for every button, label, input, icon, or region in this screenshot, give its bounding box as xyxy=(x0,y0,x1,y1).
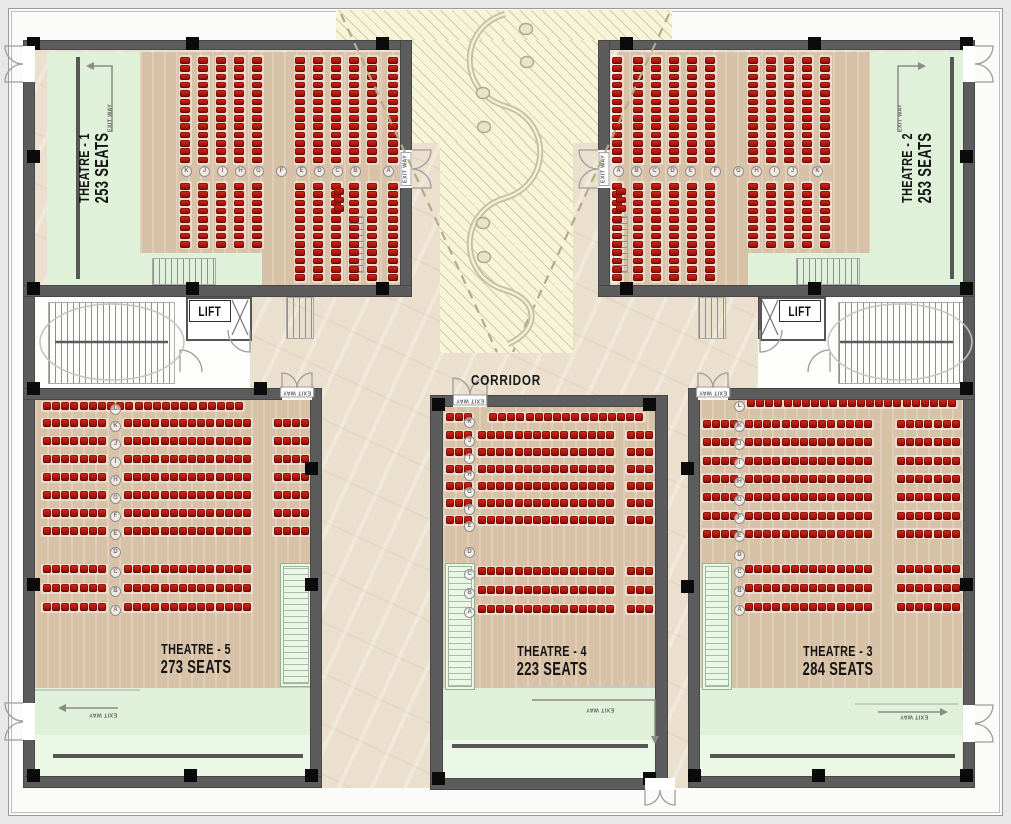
seat xyxy=(633,216,643,223)
seat xyxy=(669,140,679,147)
seat xyxy=(144,402,152,410)
seat xyxy=(388,82,398,89)
seat xyxy=(802,216,812,223)
seat xyxy=(179,455,187,463)
theatre-4-row-letter: F xyxy=(464,504,475,515)
seat xyxy=(802,140,812,147)
seat xyxy=(313,274,323,281)
seat xyxy=(208,402,216,410)
theatre-5-label: THEATRE - 5 273 SEATS xyxy=(161,641,232,677)
seat xyxy=(820,148,830,155)
seat xyxy=(802,90,812,97)
seat xyxy=(763,512,771,520)
seat xyxy=(766,90,776,97)
seat xyxy=(943,512,951,520)
seat xyxy=(524,605,532,613)
theatre-2-seat-count: 253 SEATS xyxy=(916,133,935,204)
seat xyxy=(216,565,224,573)
theatre-2-row-letter: D xyxy=(667,166,678,177)
seat xyxy=(599,413,607,421)
seat xyxy=(906,512,914,520)
theatre-5-row-letter: H xyxy=(110,475,121,486)
seat xyxy=(837,457,845,465)
seat xyxy=(295,200,305,207)
seat xyxy=(915,438,923,446)
seat xyxy=(180,241,190,248)
seat xyxy=(349,266,359,273)
seat xyxy=(446,516,454,524)
seat xyxy=(687,65,697,72)
door-leaf xyxy=(5,64,23,82)
seat xyxy=(367,274,377,281)
seat xyxy=(313,74,323,81)
seat xyxy=(791,475,799,483)
seat xyxy=(61,491,69,499)
seat xyxy=(283,437,291,445)
seat xyxy=(588,516,596,524)
seat xyxy=(180,65,190,72)
seat xyxy=(524,567,532,575)
seat xyxy=(349,274,359,281)
seat xyxy=(754,475,762,483)
seat xyxy=(943,493,951,501)
column xyxy=(305,769,318,782)
seat xyxy=(943,603,951,611)
seat xyxy=(669,90,679,97)
seat xyxy=(252,107,262,114)
seat xyxy=(295,132,305,139)
seat xyxy=(295,233,305,240)
seat xyxy=(579,567,587,575)
seat xyxy=(170,509,178,517)
seat xyxy=(61,419,69,427)
seat xyxy=(651,249,661,256)
seat xyxy=(588,482,596,490)
theatre-1-row-letter: C xyxy=(332,166,343,177)
seat xyxy=(142,491,150,499)
seat xyxy=(180,208,190,215)
seat xyxy=(636,605,644,613)
seat xyxy=(800,584,808,592)
seat xyxy=(52,509,60,517)
seat xyxy=(827,438,835,446)
seat xyxy=(551,567,559,575)
seat xyxy=(906,584,914,592)
seat xyxy=(705,200,715,207)
seat xyxy=(669,82,679,89)
theatre-1-row-letter: K xyxy=(181,166,192,177)
seat xyxy=(791,493,799,501)
seat xyxy=(198,140,208,147)
seat xyxy=(216,225,226,232)
column xyxy=(186,37,199,50)
seat xyxy=(705,90,715,97)
seat xyxy=(703,420,711,428)
seat xyxy=(43,437,51,445)
seat xyxy=(784,225,794,232)
seat xyxy=(687,216,697,223)
seat xyxy=(560,431,568,439)
stairwell-right xyxy=(838,302,965,384)
seat xyxy=(651,123,661,130)
seat xyxy=(349,225,359,232)
seat xyxy=(334,205,344,212)
seat xyxy=(809,603,817,611)
seat xyxy=(766,65,776,72)
seat xyxy=(606,586,614,594)
theatre-1-row-letter: D xyxy=(314,166,325,177)
seat xyxy=(712,512,720,520)
seat xyxy=(197,565,205,573)
seat xyxy=(930,399,938,407)
seat xyxy=(784,399,792,407)
theatre-2-screen xyxy=(950,57,954,279)
seat xyxy=(754,565,762,573)
seat xyxy=(855,530,863,538)
seat xyxy=(216,82,226,89)
theatre-2-row-letter: F xyxy=(710,166,721,177)
seat xyxy=(252,208,262,215)
seat xyxy=(313,233,323,240)
seat xyxy=(612,65,622,72)
seat xyxy=(349,258,359,265)
seat xyxy=(748,148,758,155)
seat xyxy=(748,115,758,122)
seat xyxy=(225,419,233,427)
seat xyxy=(784,233,794,240)
seat xyxy=(349,74,359,81)
seat xyxy=(367,74,377,81)
seat xyxy=(446,448,454,456)
seat xyxy=(943,530,951,538)
seat xyxy=(784,140,794,147)
seat xyxy=(61,455,69,463)
seat xyxy=(924,493,932,501)
seat xyxy=(570,567,578,575)
seat xyxy=(579,482,587,490)
seat xyxy=(839,399,847,407)
seat xyxy=(633,74,643,81)
seat xyxy=(597,465,605,473)
seat xyxy=(766,233,776,240)
seat xyxy=(748,99,758,106)
seat xyxy=(179,491,187,499)
seat xyxy=(705,183,715,190)
seat xyxy=(766,107,776,114)
seat xyxy=(142,603,150,611)
seat xyxy=(748,57,758,64)
seat xyxy=(745,565,753,573)
seat xyxy=(388,225,398,232)
seat xyxy=(915,530,923,538)
seat xyxy=(952,565,960,573)
seat xyxy=(216,157,226,164)
seat xyxy=(705,249,715,256)
seat xyxy=(651,183,661,190)
seat xyxy=(633,115,643,122)
seat xyxy=(515,567,523,575)
seat xyxy=(161,527,169,535)
seat xyxy=(551,448,559,456)
seat xyxy=(61,603,69,611)
theatre-3-screen xyxy=(710,754,955,758)
seat xyxy=(705,65,715,72)
seat xyxy=(897,475,905,483)
door-leaf xyxy=(645,790,660,805)
seat xyxy=(533,465,541,473)
theatre-5-row-letter: J xyxy=(110,439,121,450)
seat xyxy=(745,530,753,538)
seat xyxy=(772,584,780,592)
seat xyxy=(562,413,570,421)
seat xyxy=(98,473,106,481)
seat xyxy=(180,216,190,223)
seat xyxy=(721,438,729,446)
seat xyxy=(633,107,643,114)
seat xyxy=(612,123,622,130)
theatre-4-row-letter: H xyxy=(464,470,475,481)
seat xyxy=(636,516,644,524)
seat xyxy=(827,457,835,465)
seat xyxy=(153,402,161,410)
seat xyxy=(579,586,587,594)
seat xyxy=(745,457,753,465)
seat xyxy=(703,438,711,446)
seat xyxy=(234,57,244,64)
seat xyxy=(124,455,132,463)
seat xyxy=(791,584,799,592)
seat xyxy=(766,208,776,215)
seat xyxy=(705,99,715,106)
seat xyxy=(313,82,323,89)
seat xyxy=(703,493,711,501)
seat xyxy=(505,465,513,473)
seat xyxy=(766,140,776,147)
seat xyxy=(687,208,697,215)
theatre-3-seat-count: 284 SEATS xyxy=(803,660,874,679)
seat xyxy=(198,107,208,114)
seat xyxy=(952,603,960,611)
seat xyxy=(235,402,243,410)
theatre-1-row-letter: J xyxy=(199,166,210,177)
seat xyxy=(705,74,715,81)
seat xyxy=(349,148,359,155)
seat xyxy=(782,530,790,538)
floor-plan: THEATRE - 1 253 SEATS THEATRE - 2 253 SE… xyxy=(0,0,1011,824)
seat xyxy=(687,74,697,81)
theatre-1-label: THEATRE - 1 253 SEATS xyxy=(76,133,112,204)
corridor-label: CORRIDOR xyxy=(471,373,541,389)
seat xyxy=(161,419,169,427)
seat xyxy=(606,567,614,575)
seat xyxy=(645,605,653,613)
seat xyxy=(703,475,711,483)
seat xyxy=(367,140,377,147)
column xyxy=(186,282,199,295)
exit-way-label-t1: EXIT WAY xyxy=(108,104,115,132)
seat xyxy=(721,475,729,483)
seat xyxy=(295,216,305,223)
seat xyxy=(588,431,596,439)
seat xyxy=(234,123,244,130)
seat xyxy=(171,402,179,410)
seat xyxy=(809,475,817,483)
seat xyxy=(766,216,776,223)
seat xyxy=(70,419,78,427)
seat xyxy=(703,530,711,538)
seat xyxy=(446,431,454,439)
seat xyxy=(349,157,359,164)
column xyxy=(376,282,389,295)
seat xyxy=(651,241,661,248)
seat xyxy=(197,603,205,611)
seat xyxy=(612,82,622,89)
seat xyxy=(80,473,88,481)
seat xyxy=(915,584,923,592)
seat xyxy=(687,123,697,130)
seat xyxy=(864,584,872,592)
seat xyxy=(367,99,377,106)
seat xyxy=(952,420,960,428)
seat xyxy=(784,216,794,223)
seat xyxy=(301,509,309,517)
seat xyxy=(818,457,826,465)
seat xyxy=(388,241,398,248)
seat xyxy=(705,233,715,240)
seat xyxy=(651,99,661,106)
seat xyxy=(216,132,226,139)
seat xyxy=(542,516,550,524)
seat xyxy=(524,586,532,594)
seat xyxy=(924,565,932,573)
seat xyxy=(313,266,323,273)
seat xyxy=(837,438,845,446)
column xyxy=(808,37,821,50)
theatre-5-row-letter: G xyxy=(110,493,121,504)
exit-way-label-t2: EXIT WAY xyxy=(898,104,905,132)
seat xyxy=(784,90,794,97)
seat xyxy=(216,509,224,517)
seat xyxy=(651,57,661,64)
seat xyxy=(189,402,197,410)
seat xyxy=(952,584,960,592)
theatre-3-row-letter: F xyxy=(734,513,745,524)
seat xyxy=(367,123,377,130)
seat xyxy=(234,191,244,198)
seat xyxy=(802,123,812,130)
seat xyxy=(274,455,282,463)
seat xyxy=(747,399,755,407)
seat xyxy=(612,140,622,147)
seat xyxy=(180,148,190,155)
seat xyxy=(216,57,226,64)
theatre-4-row-letter: D xyxy=(464,547,475,558)
seat xyxy=(206,565,214,573)
seat xyxy=(820,140,830,147)
seat xyxy=(142,527,150,535)
seat xyxy=(818,475,826,483)
seat xyxy=(687,266,697,273)
seat xyxy=(651,115,661,122)
seat xyxy=(703,512,711,520)
seat xyxy=(216,241,226,248)
seat xyxy=(133,584,141,592)
seat xyxy=(612,258,622,265)
seat xyxy=(243,473,251,481)
seat xyxy=(161,455,169,463)
seat xyxy=(934,438,942,446)
seat xyxy=(570,482,578,490)
seat xyxy=(43,402,51,410)
seat xyxy=(800,512,808,520)
seat xyxy=(292,491,300,499)
seat xyxy=(763,475,771,483)
seat xyxy=(234,527,242,535)
seat xyxy=(216,65,226,72)
seat xyxy=(818,530,826,538)
theatre-2-row-letter: K xyxy=(812,166,823,177)
seat xyxy=(216,107,226,114)
seat xyxy=(837,603,845,611)
seat xyxy=(367,107,377,114)
seat xyxy=(161,491,169,499)
seat xyxy=(866,399,874,407)
seat xyxy=(388,90,398,97)
seat xyxy=(234,509,242,517)
seat xyxy=(234,132,244,139)
seat xyxy=(669,233,679,240)
seat xyxy=(924,420,932,428)
seat xyxy=(687,200,697,207)
seat xyxy=(524,482,532,490)
seat xyxy=(216,473,224,481)
seat xyxy=(52,603,60,611)
seat xyxy=(818,565,826,573)
seat xyxy=(496,567,504,575)
seat xyxy=(705,115,715,122)
seat xyxy=(206,509,214,517)
seat xyxy=(633,241,643,248)
seat xyxy=(590,413,598,421)
seat xyxy=(915,603,923,611)
seat xyxy=(802,148,812,155)
seat xyxy=(633,233,643,240)
seat xyxy=(295,57,305,64)
seat xyxy=(651,82,661,89)
theatre-3-row-letter: C xyxy=(734,567,745,578)
seat xyxy=(180,90,190,97)
seat xyxy=(234,208,244,215)
seat xyxy=(793,399,801,407)
seat xyxy=(612,216,622,223)
seat xyxy=(283,419,291,427)
seat xyxy=(367,82,377,89)
seat xyxy=(313,140,323,147)
seat xyxy=(687,99,697,106)
seat xyxy=(952,512,960,520)
seat xyxy=(331,82,341,89)
seat xyxy=(388,65,398,72)
seat xyxy=(313,157,323,164)
seat xyxy=(748,216,758,223)
seat xyxy=(487,586,495,594)
seat xyxy=(516,413,524,421)
seat xyxy=(180,82,190,89)
seat xyxy=(627,605,635,613)
seat xyxy=(487,567,495,575)
seat xyxy=(243,491,251,499)
seat xyxy=(349,216,359,223)
